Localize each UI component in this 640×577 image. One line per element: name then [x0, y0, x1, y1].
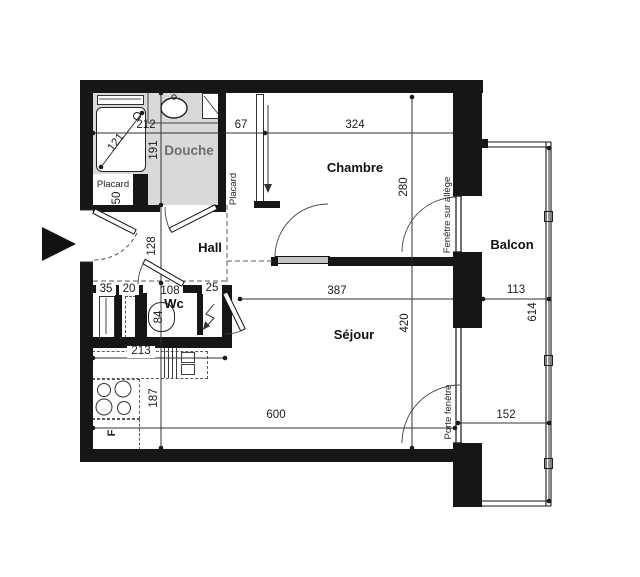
sink-basin-a: [181, 352, 195, 363]
wall-chambre-south: [328, 257, 453, 266]
room-label-chambre: Chambre: [320, 160, 390, 174]
dim-douche-height: 191: [149, 136, 161, 164]
chambre-door-leaf: [275, 256, 330, 264]
dim-kitchen-depth: 187: [149, 384, 161, 412]
room-label-balcon: Balcon: [482, 237, 542, 251]
room-label-placard-chambre: Placard: [227, 175, 239, 203]
room-label-hall: Hall: [190, 240, 230, 254]
sliding-door-arrow-icon: [264, 105, 272, 193]
floor-plan: Douche Chambre Hall Wc Séjour Balcon Pla…: [0, 0, 640, 577]
dim-wc-depth: 108: [157, 286, 183, 298]
wall-placard-stub: [254, 201, 280, 208]
window-chambre-icon: [453, 196, 462, 252]
wall-wc-div3: [197, 293, 203, 335]
window-label-chambre: Fenêtre sur allège: [441, 175, 453, 255]
wall-wc-bottom: [93, 337, 232, 348]
dim-sejour-total-width: 600: [261, 410, 291, 422]
dim-balcon-length: 614: [528, 298, 540, 326]
hall-dashed-boundary: [93, 205, 273, 283]
window-sejour-icon: [453, 327, 462, 443]
cooktop: [92, 379, 140, 419]
wall-bottom: [80, 449, 453, 462]
wall-placard-entree: [133, 174, 148, 207]
wall-right-upper: [453, 80, 482, 196]
fridge-label: F: [106, 419, 118, 447]
dim-douche-width: 212: [132, 120, 160, 132]
dim-wc-width: 84: [154, 303, 166, 331]
wall-left-lower: [80, 262, 93, 462]
dim-placard-entree: 50: [112, 184, 124, 212]
dim-kitchen-width: 213: [127, 346, 155, 358]
dim-gaine-mid: 20: [119, 284, 139, 295]
sink-basin-b: [181, 364, 195, 375]
wall-right-mid: [453, 252, 482, 328]
entrance-arrow-icon: [42, 227, 76, 261]
wall-douche-south-a: [93, 205, 160, 212]
balcony-railing: [482, 142, 551, 506]
rail-post-3: [544, 458, 553, 469]
sink-drainboard: [164, 347, 179, 378]
rail-post-1: [544, 211, 553, 222]
dim-sejour-depth: 420: [400, 309, 412, 337]
dim-chambre-width: 324: [341, 120, 369, 132]
dim-chambre-height: 280: [399, 173, 411, 201]
sliding-door-panel: [256, 94, 264, 202]
wall-placard-left: [218, 93, 226, 205]
radiator: [97, 95, 144, 105]
rail-post-2: [544, 355, 553, 366]
dim-balcon-width-bottom: 152: [491, 410, 521, 422]
dim-sejour-width: 387: [322, 286, 352, 298]
wall-top: [80, 80, 483, 93]
duct-left: [99, 296, 115, 338]
electrical-riser-icon: [203, 304, 214, 330]
dim-hall: 128: [147, 232, 159, 260]
wall-left-upper: [80, 80, 93, 210]
room-label-sejour: Séjour: [319, 327, 389, 341]
wall-right-lower: [453, 443, 482, 507]
window-label-sejour: Porte fenêtre: [442, 377, 454, 447]
dim-balcon-width-top: 113: [501, 285, 531, 297]
dim-placard-chambre: 67: [230, 120, 252, 132]
wall-wc-div2: [135, 293, 147, 337]
wall-douche-south-b: [212, 205, 226, 212]
wall-wc-div1: [115, 293, 122, 337]
room-label-douche: Douche: [164, 143, 214, 157]
dim-gaine-right: 25: [202, 283, 222, 294]
wall-chambre-jamb: [271, 257, 278, 266]
dim-gaine-left: 35: [96, 284, 116, 295]
